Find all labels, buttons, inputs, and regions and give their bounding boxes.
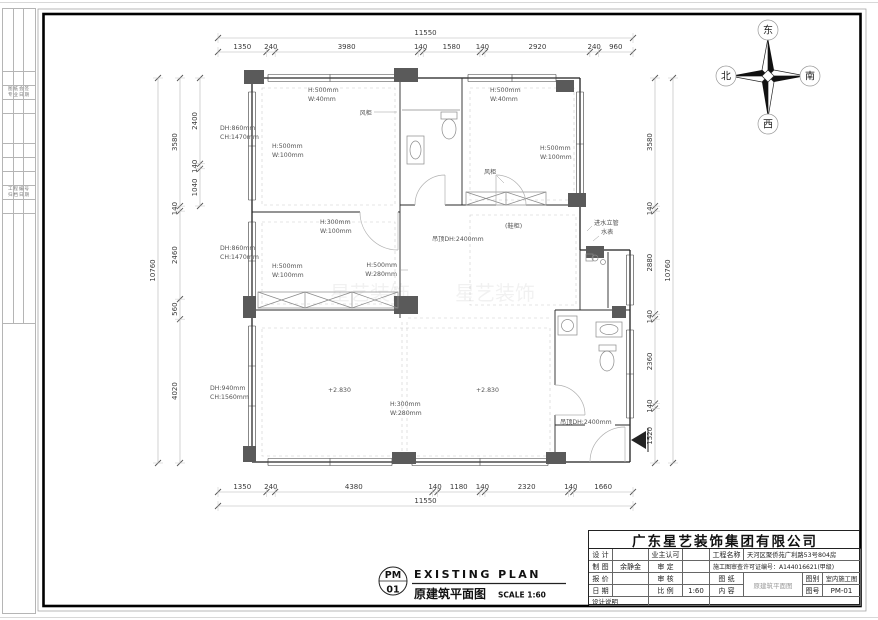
compass-east: 东 — [763, 24, 773, 37]
compass-north: 北 — [721, 71, 731, 83]
empty-cell — [649, 597, 710, 606]
window-label: W:280mm — [390, 410, 422, 417]
riser-label: 进水立管 — [594, 219, 619, 227]
approve-label: 审 定 — [649, 561, 683, 573]
dim-label: 11550 — [414, 497, 436, 505]
window-label: W:100mm — [320, 228, 352, 235]
flue-label: 风柜 — [484, 168, 496, 176]
plan-title-cn: 原建筑平面图 — [414, 586, 486, 601]
owner-approval-value — [683, 549, 710, 561]
window-label: CH:1470mm — [220, 134, 259, 141]
window-label: CH:1560mm — [210, 394, 249, 401]
dim-label: 4020 — [171, 382, 179, 400]
frame-outer — [38, 9, 866, 611]
dim-label: 240 — [264, 43, 277, 51]
plan-scale-note: SCALE 1:60 — [498, 591, 546, 600]
content-value: 原建筑平面图 — [744, 573, 803, 597]
dim-label: 10760 — [664, 259, 672, 281]
dim-label: 2360 — [646, 352, 654, 370]
draft-label: 制 图 — [589, 561, 613, 573]
window-label: H:500mm — [490, 87, 521, 94]
window-label: H:500mm — [272, 263, 303, 270]
dim-label: 3580 — [171, 133, 179, 151]
sheet-code-top: PM — [385, 570, 401, 581]
date-label: 日 期 — [589, 585, 613, 597]
quote-label: 报 价 — [589, 573, 613, 585]
dim-label: 4380 — [345, 483, 363, 491]
design-label: 设 计 — [589, 549, 613, 561]
compass-south: 南 — [805, 70, 815, 83]
quote-value — [613, 573, 649, 585]
approve-value — [683, 561, 710, 573]
permit-number: 施工图审查许可证编号：A144016621(甲级) — [710, 561, 861, 573]
title-block: 广东星艺装饰集团有限公司 设 计 制 图 余静金 报 价 日 期 业主认可 审 … — [588, 530, 860, 605]
floor-plan-canvas: 星艺装饰 星艺装饰 — [0, 0, 878, 620]
interior-walls — [252, 78, 630, 462]
watermark: 星艺装饰 星艺装饰 — [330, 281, 535, 305]
drawing-no-value: PM-01 — [823, 585, 861, 597]
dim-label: 2920 — [529, 43, 547, 51]
water-meter-label: 水表 — [601, 228, 613, 236]
content-label: 内 容 — [710, 585, 744, 597]
plan-title: PM 01 EXISTING PLAN 原建筑平面图 SCALE 1:60 — [379, 567, 566, 601]
dim-label: 1660 — [594, 483, 612, 491]
window-label: W:100mm — [540, 154, 572, 161]
level-label: +2.830 — [328, 387, 351, 394]
dim-label: 10760 — [149, 259, 157, 281]
dim-label: 1180 — [450, 483, 468, 491]
drawing-sheet: 图纸会签 专业日期 工程编号 归档日期 星艺装饰 星艺装饰 — [0, 0, 878, 620]
compass-rose: 东 北 南 西 — [716, 20, 820, 134]
check-value — [683, 573, 710, 585]
window-label: H:500mm — [366, 262, 397, 269]
project-name-label: 工程名称 — [710, 549, 744, 561]
level-label: +2.830 — [476, 387, 499, 394]
window-label: DH:860mm — [220, 125, 255, 132]
dim-label: 560 — [171, 302, 179, 315]
owner-approval-label: 业主认可 — [649, 549, 683, 561]
dim-label: 1350 — [233, 483, 251, 491]
dim-label: 2320 — [518, 483, 536, 491]
scale-value: 1:60 — [683, 585, 710, 597]
dim-label: 1520 — [646, 427, 654, 445]
ceiling-label: 吊顶DH:2400mm — [560, 419, 612, 426]
frame-inner — [44, 14, 861, 606]
dim-label: 240 — [588, 43, 601, 51]
ceiling-label: 吊顶DH:2400mm — [432, 236, 484, 243]
window-label: CH:1470mm — [220, 254, 259, 261]
dim-label: 2880 — [646, 254, 654, 272]
dim-label: 2400 — [191, 112, 199, 130]
sheet-code-bottom: 01 — [386, 585, 399, 596]
window-label: H:300mm — [390, 401, 421, 408]
window-label: W:40mm — [308, 96, 336, 103]
compass-west: 西 — [763, 120, 773, 131]
draft-value: 余静金 — [613, 561, 649, 573]
window-label: DH:940mm — [210, 385, 245, 392]
window-label: W:40mm — [490, 96, 518, 103]
dim-label: 3980 — [338, 43, 356, 51]
project-name-value: 天河区聚侨苑广利路53号804房 — [744, 549, 861, 561]
dim-label: 2460 — [171, 246, 179, 264]
window-label: H:500mm — [308, 87, 339, 94]
dim-label: 240 — [264, 483, 277, 491]
drawing-no-label: 图号 — [803, 585, 823, 597]
dim-label: 1580 — [443, 43, 461, 51]
windows — [249, 75, 634, 466]
window-label: H:500mm — [540, 145, 571, 152]
design-notes-label: 设计说明 — [589, 597, 649, 606]
drawing-type-label: 图别 — [803, 573, 823, 585]
plan-title-en: EXISTING PLAN — [414, 568, 541, 581]
window-label: W:100mm — [272, 272, 304, 279]
company-name: 广东星艺装饰集团有限公司 — [589, 531, 861, 549]
dim-label: 1350 — [233, 43, 251, 51]
dim-label: 11550 — [414, 29, 436, 37]
date-value — [613, 585, 649, 597]
scale-label: 比 例 — [649, 585, 683, 597]
shoe-cabinet-label: (鞋柜) — [505, 222, 522, 230]
window-label: W:280mm — [365, 271, 397, 278]
drawing-type-value: 室内施工图 — [823, 573, 861, 585]
dim-label: 1040 — [191, 178, 199, 196]
plan-labels: H:500mm W:40mm H:500mm W:100mm DH:860mm … — [210, 87, 619, 426]
empty-cell — [710, 597, 861, 606]
sheet-label: 图 纸 — [710, 573, 744, 585]
window-label: DH:860mm — [220, 245, 255, 252]
flue-label: 风柜 — [360, 109, 372, 117]
design-value — [613, 549, 649, 561]
svg-text:星艺装饰: 星艺装饰 — [455, 281, 535, 305]
check-label: 审 核 — [649, 573, 683, 585]
dim-label: 3580 — [646, 133, 654, 151]
window-label: H:500mm — [272, 143, 303, 150]
exterior-walls — [252, 78, 630, 462]
window-label: H:300mm — [320, 219, 351, 226]
window-label: W:100mm — [272, 152, 304, 159]
dim-label: 960 — [609, 43, 622, 51]
